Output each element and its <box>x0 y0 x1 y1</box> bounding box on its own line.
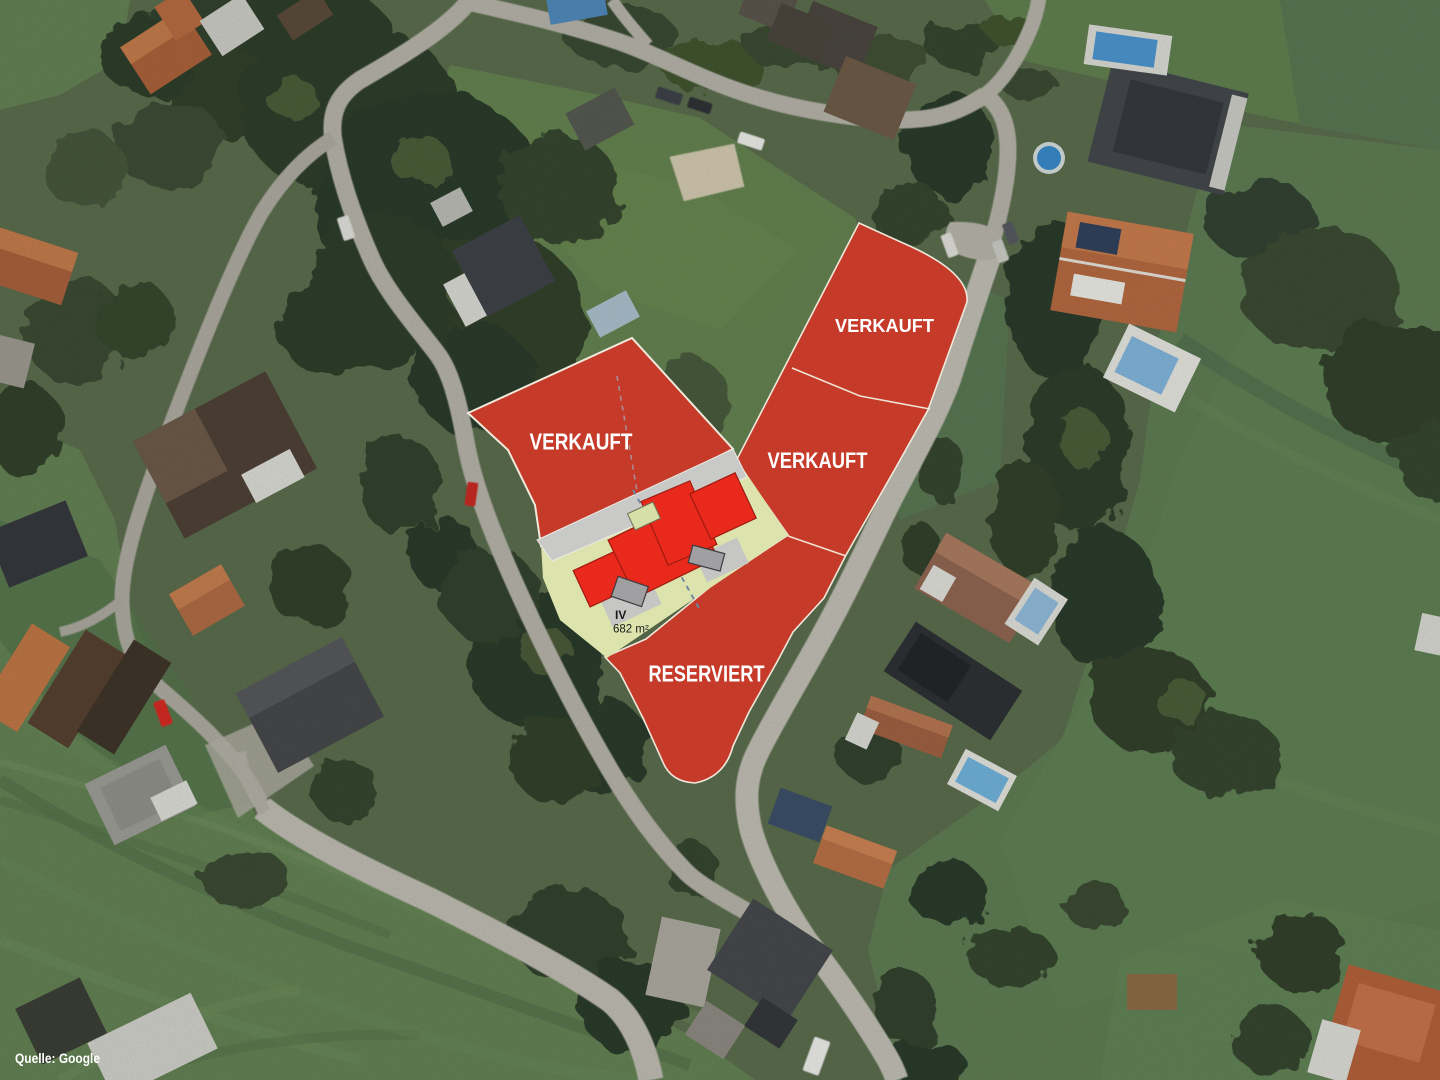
svg-text:RESERVIERT: RESERVIERT <box>649 661 765 687</box>
svg-text:VERKAUFT: VERKAUFT <box>530 429 633 455</box>
svg-text:VERKAUFT: VERKAUFT <box>835 315 935 336</box>
svg-text:682 m²: 682 m² <box>613 624 649 636</box>
svg-text:VERKAUFT: VERKAUFT <box>768 448 868 473</box>
svg-text:Quelle: Google: Quelle: Google <box>15 1050 100 1066</box>
svg-text:IV: IV <box>615 608 626 622</box>
